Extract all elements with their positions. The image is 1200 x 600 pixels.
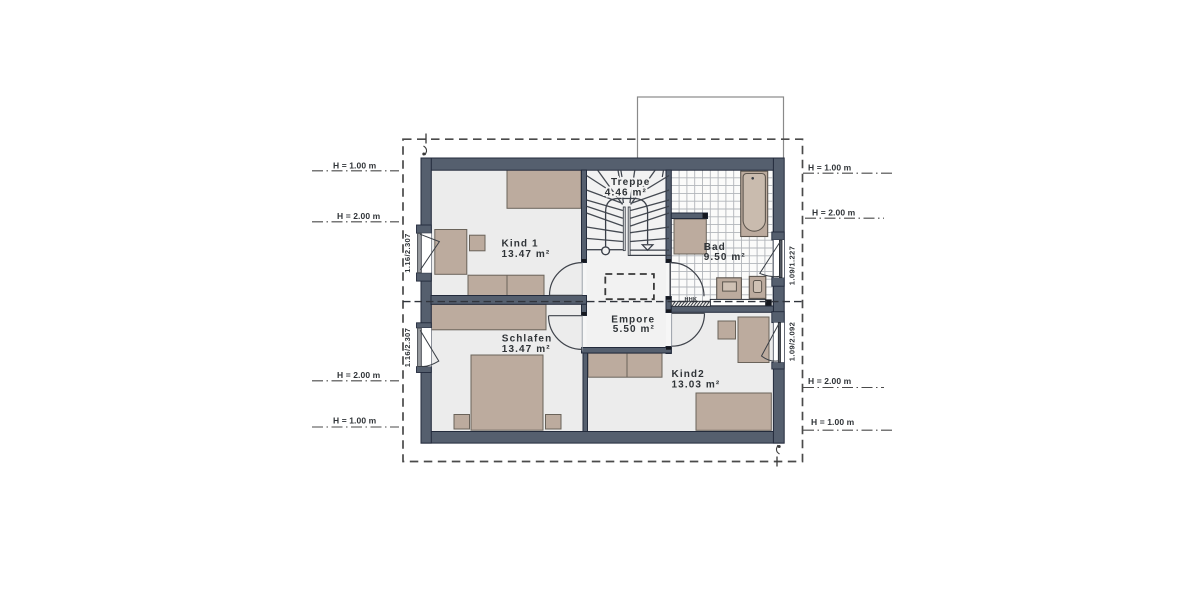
svg-text:9.50 m²: 9.50 m² <box>704 252 746 263</box>
svg-text:13.03 m²: 13.03 m² <box>672 380 721 391</box>
svg-text:H = 1.00 m: H = 1.00 m <box>808 163 852 173</box>
svg-text:1.09/2.092: 1.09/2.092 <box>788 322 797 361</box>
svg-text:13.47 m²: 13.47 m² <box>502 249 551 260</box>
svg-text:5.50 m²: 5.50 m² <box>613 324 655 335</box>
svg-text:H = 2.00 m: H = 2.00 m <box>337 370 381 380</box>
svg-text:H = 2.00 m: H = 2.00 m <box>812 208 856 218</box>
svg-text:13.47 m²: 13.47 m² <box>502 344 551 355</box>
svg-text:1.16/2.307: 1.16/2.307 <box>403 233 412 272</box>
svg-text:H = 1.00 m: H = 1.00 m <box>333 416 377 426</box>
svg-text:H = 2.00 m: H = 2.00 m <box>808 376 852 386</box>
svg-text:4.46 m²: 4.46 m² <box>605 187 647 198</box>
svg-text:H = 1.00 m: H = 1.00 m <box>333 161 377 171</box>
svg-text:H = 2.00 m: H = 2.00 m <box>337 211 381 221</box>
svg-text:1.16/2.307: 1.16/2.307 <box>403 328 412 367</box>
svg-text:1.09/1.227: 1.09/1.227 <box>788 246 797 285</box>
svg-text:H = 1.00 m: H = 1.00 m <box>811 417 855 427</box>
svg-text:Kind2: Kind2 <box>672 369 705 380</box>
